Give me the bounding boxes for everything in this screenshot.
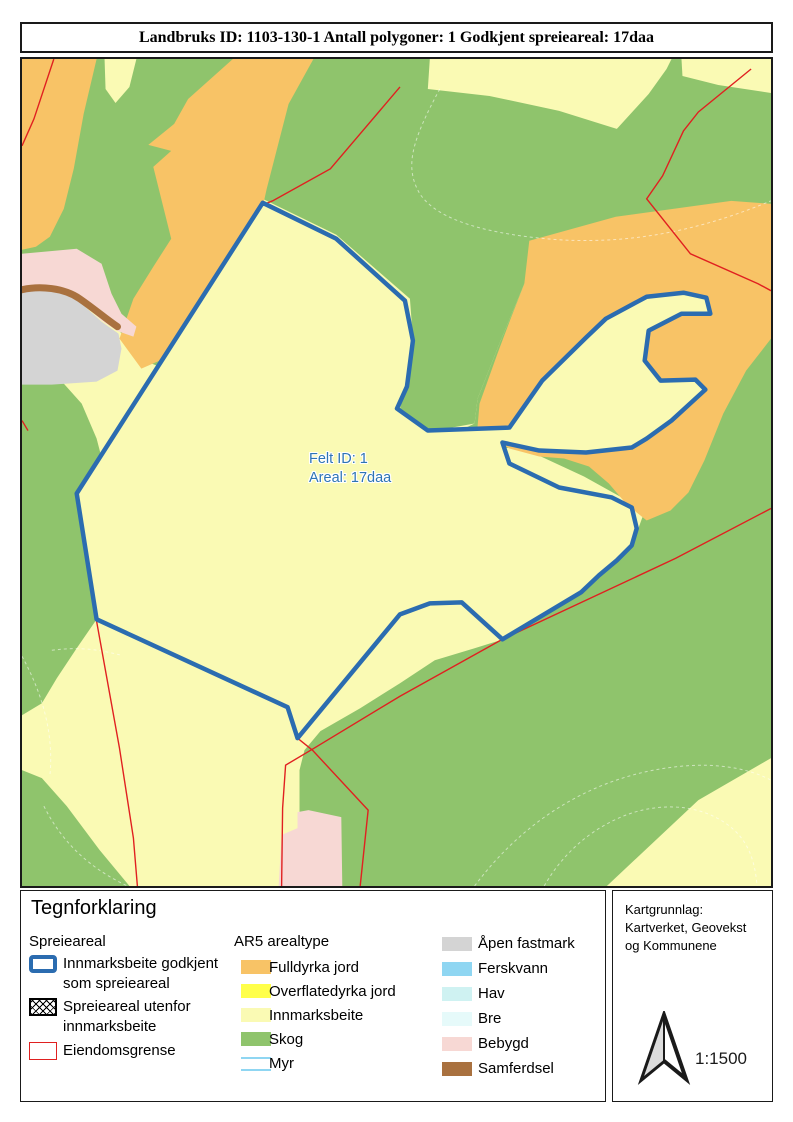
legend-label: Ferskvann <box>478 960 548 977</box>
legend-label: Samferdsel <box>478 1060 554 1077</box>
map-source-text: Kartgrunnlag: Kartverket, Geovekst og Ko… <box>625 901 746 955</box>
map-source-line: Kartgrunnlag: <box>625 901 746 919</box>
legend-swatch-apen-fastmark <box>442 937 472 951</box>
legend-heading: Tegnforklaring <box>31 897 157 920</box>
map-source-panel: Kartgrunnlag: Kartverket, Geovekst og Ko… <box>612 890 773 1102</box>
map-svg <box>22 59 771 886</box>
legend-swatch-myr <box>241 1057 271 1071</box>
legend-label: Overflatedyrka jord <box>269 983 396 1000</box>
field-area-text: Areal: 17daa <box>309 469 391 488</box>
title-bar: Landbruks ID: 1103-130-1 Antall polygone… <box>20 22 773 53</box>
legend-label: Bebygd <box>478 1035 529 1052</box>
legend-label: Hav <box>478 985 505 1002</box>
legend-swatch-skog <box>241 1032 271 1046</box>
legend-swatch-hav <box>442 987 472 1001</box>
legend-label: Innmarksbeite <box>269 1007 363 1024</box>
north-arrow-icon <box>635 1011 693 1085</box>
legend-label: innmarksbeite <box>63 1018 156 1035</box>
scale-label: 1:1500 <box>695 1049 747 1069</box>
legend-swatch-bre <box>442 1012 472 1026</box>
legend-swatch-innmarksbeite <box>241 1008 271 1022</box>
field-label: Felt ID: 1 Areal: 17daa <box>309 450 391 488</box>
legend-label: Eiendomsgrense <box>63 1042 176 1059</box>
map-source-line: Kartverket, Geovekst <box>625 919 746 937</box>
page-title: Landbruks ID: 1103-130-1 Antall polygone… <box>139 29 654 47</box>
legend-swatch-samferdsel <box>442 1062 472 1076</box>
legend-label: Skog <box>269 1031 303 1048</box>
field-id-text: Felt ID: 1 <box>309 450 391 469</box>
legend-col1-heading: Spreieareal <box>29 933 106 950</box>
map-source-line: og Kommunene <box>625 937 746 955</box>
legend-swatch-bebygd <box>442 1037 472 1051</box>
legend-label: Spreieareal utenfor <box>63 998 191 1015</box>
legend-swatch-overflatedyrka <box>241 984 271 998</box>
legend-col2-heading: AR5 arealtype <box>234 933 329 950</box>
legend-swatch-spreieareal-utenfor <box>29 998 57 1016</box>
legend-label: Innmarksbeite godkjent <box>63 955 218 972</box>
legend-label: som spreieareal <box>63 975 170 992</box>
legend-label: Bre <box>478 1010 501 1027</box>
legend-label: Myr <box>269 1055 294 1072</box>
legend-swatch-fulldyrka <box>241 960 271 974</box>
legend-panel: Tegnforklaring Spreieareal Innmarksbeite… <box>20 890 606 1102</box>
legend-swatch-eiendomsgrense <box>29 1042 57 1060</box>
legend-label: Åpen fastmark <box>478 935 575 952</box>
legend-label: Fulldyrka jord <box>269 959 359 976</box>
legend-swatch-ferskvann <box>442 962 472 976</box>
map-report-page: { "title": "Landbruks ID: 1103-130-1 Ant… <box>0 0 793 1122</box>
map-canvas[interactable]: Felt ID: 1 Areal: 17daa <box>20 57 773 888</box>
legend-swatch-innmarksbeite-godkjent <box>29 955 57 973</box>
